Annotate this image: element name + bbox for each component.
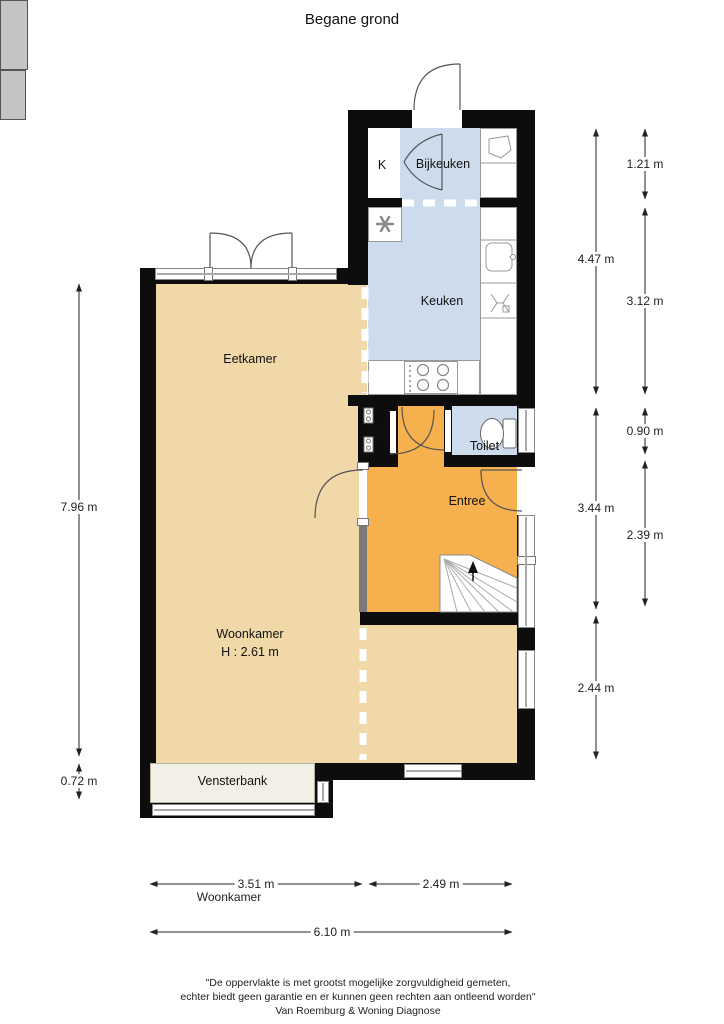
exterior-door <box>414 64 460 110</box>
room-rear-living <box>364 625 517 763</box>
wall-segment <box>140 268 156 818</box>
footer-disclaimer-line2: echter biedt geen garantie en er kunnen … <box>180 991 535 1003</box>
footer-disclaimer-line1: "De oppervlakte is met grootst mogelijke… <box>206 977 511 989</box>
window-mullion <box>517 556 536 565</box>
window-front-top <box>155 268 337 280</box>
wall-segment <box>348 110 368 285</box>
room-label-eetkamer: Eetkamer <box>190 352 310 366</box>
room-label-k: K <box>368 158 396 172</box>
room-label-woonkamer-height: H : 2.61 m <box>190 645 310 659</box>
room-label-mk: MK <box>361 424 393 438</box>
room-label-keuken: Keuken <box>392 294 492 308</box>
dim-7-96: 7.96 m <box>58 500 101 514</box>
door-jamb <box>357 462 369 470</box>
wall-segment <box>480 198 517 207</box>
window-step <box>317 781 329 803</box>
floorplan: Begane grond <box>0 0 724 1024</box>
window-rear-room <box>518 650 535 709</box>
page-title: Begane grond <box>305 11 399 28</box>
room-entree-main <box>366 465 517 612</box>
door-jamb <box>357 518 369 526</box>
room-label-entree: Entree <box>417 494 517 508</box>
exterior-door-opening <box>412 110 462 128</box>
dim-2-49: 2.49 m <box>420 877 463 891</box>
ventilation-unit <box>368 207 402 242</box>
window-mullion <box>288 267 297 281</box>
front-door-opening <box>517 467 535 515</box>
wall-segment <box>360 612 535 625</box>
dim-3-51: 3.51 m <box>235 877 278 891</box>
dim-6-10: 6.10 m <box>311 925 354 939</box>
window-bottom-left <box>152 804 315 816</box>
room-label-woonkamer: Woonkamer <box>190 627 310 641</box>
dim-2-44: 2.44 m <box>575 681 618 695</box>
french-door-right <box>251 233 292 268</box>
wall-segment <box>444 455 535 467</box>
room-label-bijkeuken: Bijkeuken <box>398 157 488 171</box>
dim-0-90: 0.90 m <box>624 424 667 438</box>
stove <box>404 361 458 394</box>
toilet-door-slot <box>445 410 451 452</box>
dim-2-39: 2.39 m <box>624 528 667 542</box>
dim-1-21: 1.21 m <box>624 157 667 171</box>
closet-k <box>0 0 28 70</box>
window-bottom-right <box>404 764 462 778</box>
living-door-opening <box>359 470 367 518</box>
room-entree-upper <box>398 405 444 467</box>
window-entree <box>518 515 535 628</box>
window-toilet <box>518 408 535 453</box>
room-label-vensterbank: Vensterbank <box>150 774 315 788</box>
dim-0-72: 0.72 m <box>58 774 101 788</box>
dim-4-47: 4.47 m <box>575 252 618 266</box>
footer-company: Van Roemburg & Woning Diagnose <box>275 1005 440 1017</box>
french-door-left <box>210 233 251 268</box>
window-mullion <box>204 267 213 281</box>
dim-room-label-woonkamer: Woonkamer <box>197 890 261 904</box>
dim-3-44: 3.44 m <box>575 501 618 515</box>
room-label-toilet: Toilet <box>452 439 517 453</box>
dim-3-12: 3.12 m <box>624 294 667 308</box>
closet-meterkast <box>0 70 26 120</box>
